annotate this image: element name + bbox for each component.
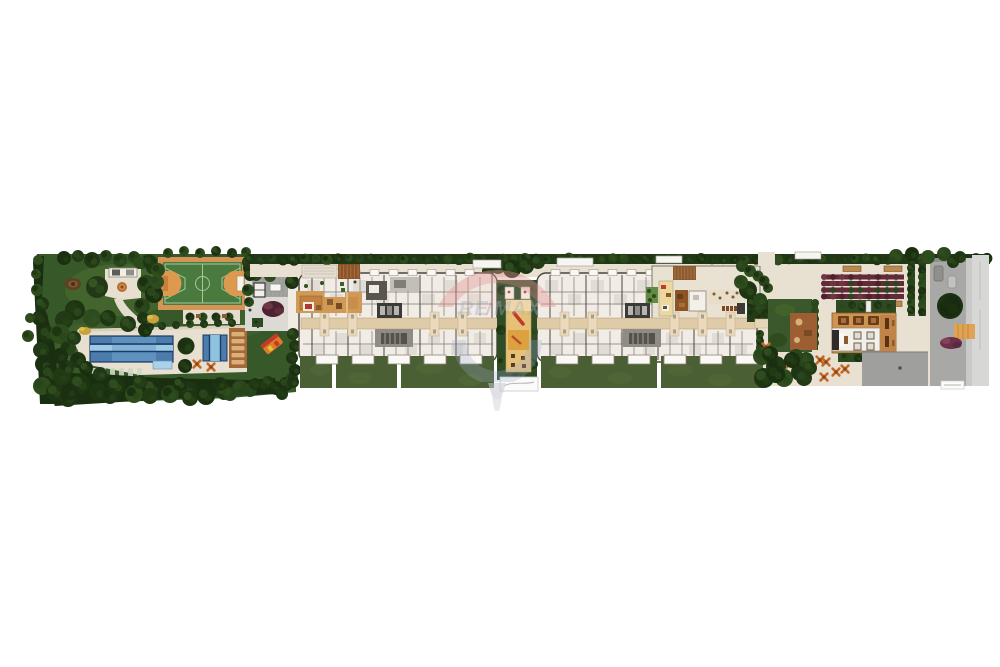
svg-text:RE: RE bbox=[459, 298, 489, 320]
svg-text:MAX: MAX bbox=[494, 298, 542, 320]
